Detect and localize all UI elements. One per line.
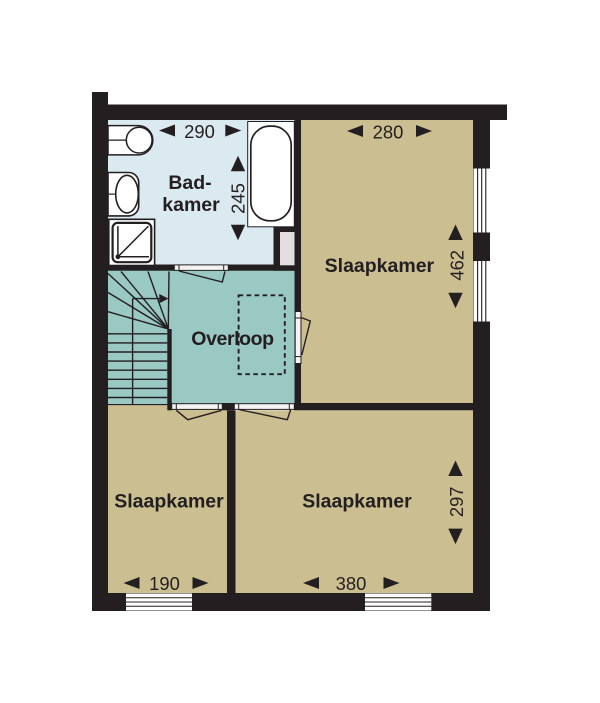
svg-text:Bad-: Bad-	[168, 172, 211, 194]
svg-text:280: 280	[373, 122, 404, 143]
svg-text:462: 462	[447, 250, 468, 281]
svg-text:Slaapkamer: Slaapkamer	[114, 490, 224, 512]
svg-text:190: 190	[149, 573, 180, 594]
svg-text:245: 245	[228, 183, 249, 214]
svg-text:Slaapkamer: Slaapkamer	[325, 255, 435, 277]
svg-text:297: 297	[446, 486, 467, 517]
svg-text:kamer: kamer	[162, 194, 220, 216]
svg-text:380: 380	[336, 573, 367, 594]
svg-text:Slaapkamer: Slaapkamer	[302, 490, 412, 512]
svg-text:290: 290	[184, 121, 215, 142]
svg-text:Overloop: Overloop	[191, 328, 274, 350]
